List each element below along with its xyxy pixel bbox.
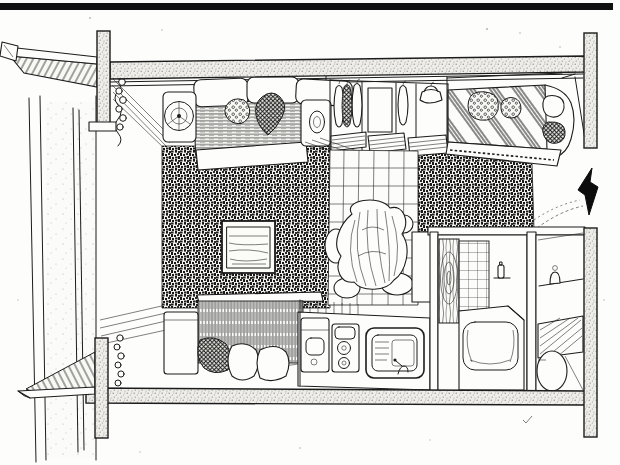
shelf-cup [550,272,560,284]
toilet-room [536,233,585,392]
floor-cushion [257,346,289,380]
bathtub [459,306,524,390]
striped-duvet [448,85,561,150]
bathroom [438,235,527,392]
sofa-left-armrest [163,92,196,142]
washbasin-unit [301,318,329,372]
bathroom-wall-caps [428,227,585,235]
hall-carpet [418,150,534,232]
round-throw-pillow [225,99,250,124]
bolster-end [543,96,564,118]
apartment-cutaway-illustration [0,0,620,465]
crosshatched-headrest [543,122,565,143]
floor-cushion [228,344,259,380]
lower-left-column [95,338,108,438]
bath-toilet-divider-wall [527,232,536,392]
bath-tiled-wall [459,241,489,311]
lower-floor-slab [86,388,585,405]
dotted-pillow [501,98,521,119]
two-burner-stove [332,324,359,372]
closet-door-panel [368,88,392,132]
dotted-pillow [468,92,498,121]
bath-door [439,239,459,323]
upper-right-wall [584,33,597,148]
lower-right-wall [584,228,597,437]
top-border-bar [0,3,613,10]
side-cabinet [164,312,198,374]
illustration-svg [0,0,620,465]
tv [222,221,275,273]
sofa-right-armrest [301,100,331,146]
bed [446,85,574,166]
kitchen-bath-divider-wall [430,232,438,392]
toilet-slatted-lid [538,316,583,358]
